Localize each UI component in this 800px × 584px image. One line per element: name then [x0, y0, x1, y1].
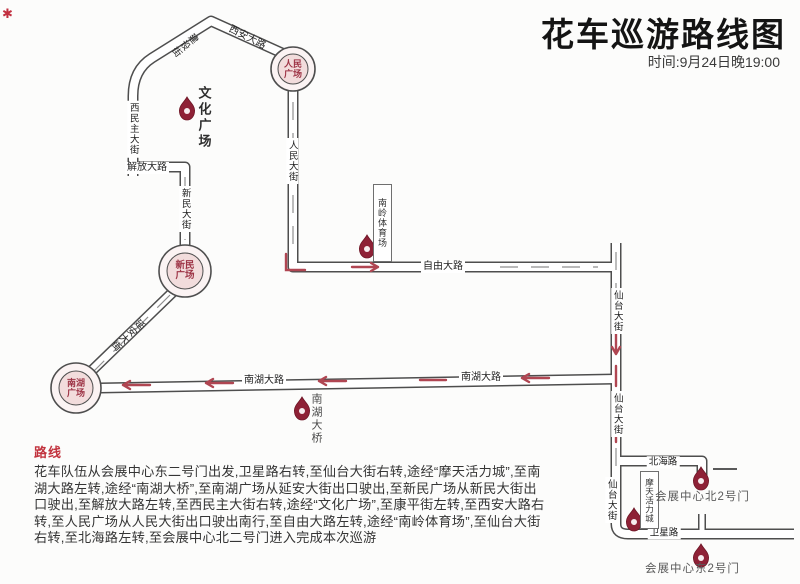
plaza-renmin-line2: 广场: [284, 69, 302, 79]
road-label-nanhu-road-1: 南湖大路: [242, 375, 286, 387]
plaza-label-nanhu: 南湖 广场: [67, 378, 85, 398]
landmark-label-north-gate-2: 会展中心北2号门: [655, 488, 750, 504]
route-line-5: 右转,至北海路左转,至会展中心北二号门进入完成本次巡游: [34, 530, 614, 547]
road-renmin-ziyou: [293, 60, 616, 267]
route-line-1: 花车队伍从会展中心东二号门出发,卫星路右转,至仙台大街右转,途经“摩天活力城”,…: [34, 464, 614, 481]
plaza-label-renmin: 人民 广场: [284, 59, 302, 79]
plaza-label-xinmin: 新民 广场: [175, 261, 194, 281]
landmark-label-east-gate-2: 会展中心东2号门: [645, 560, 740, 576]
route-heading: 路线: [34, 442, 614, 461]
road-label-xiantai-street-1: 仙台大街: [611, 288, 623, 334]
road-label-xiantai-street-2: 仙台大街: [611, 391, 623, 437]
road-label-jiefang-road: 解放大路: [125, 162, 169, 174]
road-label-ximinzhu-street: 西民主大街: [127, 101, 139, 158]
route-line-2: 湖大路左转,途经“南湖大桥”,至南湖广场从延安大街出口驶出,至新民广场从新民大街…: [34, 481, 614, 498]
page-title: 花车巡游路线图: [541, 8, 786, 56]
road-jiefang-xinmin: [131, 167, 185, 252]
road-label-renmin-street: 人民大街: [286, 138, 298, 184]
parade-route-map-page: ✱ 花车巡游路线图 时间:9月24日晚19:00 建设街 西安大路 西民主大街 …: [0, 0, 800, 584]
plaza-nanhu-line1: 南湖: [67, 378, 85, 388]
route-description: 路线 花车队伍从会展中心东二号门出发,卫星路右转,至仙台大街右转,途经“摩天活力…: [34, 442, 614, 547]
location-pin-wenhua-icon: [179, 97, 194, 120]
road-label-xinmin-street: 新民大街: [179, 186, 191, 232]
road-label-nanhu-road-2: 南湖大路: [459, 372, 503, 384]
event-time: 时间:9月24日晚19:00: [648, 52, 780, 72]
plaza-nanhu-line2: 广场: [67, 388, 85, 398]
red-stamp-artifact: ✱: [2, 6, 13, 22]
route-line-3: 口驶出,至解放大路左转,至西民主大街右转,途经“文化广场”,至康平街左转,至西安…: [34, 497, 614, 514]
landmark-label-nanhu-bridge: 南湖大桥: [308, 393, 324, 445]
plaza-renmin-line1: 人民: [284, 59, 302, 69]
landmark-label-nanling-stadium: 南岭体育场: [373, 184, 392, 262]
route-line-4: 转,至人民广场从人民大街出口驶出南行,至自由大路左转,途经“南岭体育场”,至仙台…: [34, 514, 614, 531]
road-label-beihai-road: 北海路: [647, 456, 680, 468]
plaza-xinmin-line2: 广场: [175, 271, 194, 281]
road-label-ziyou-road: 自由大路: [421, 261, 465, 273]
landmark-label-wenhua-square: 文化广场: [195, 86, 214, 150]
